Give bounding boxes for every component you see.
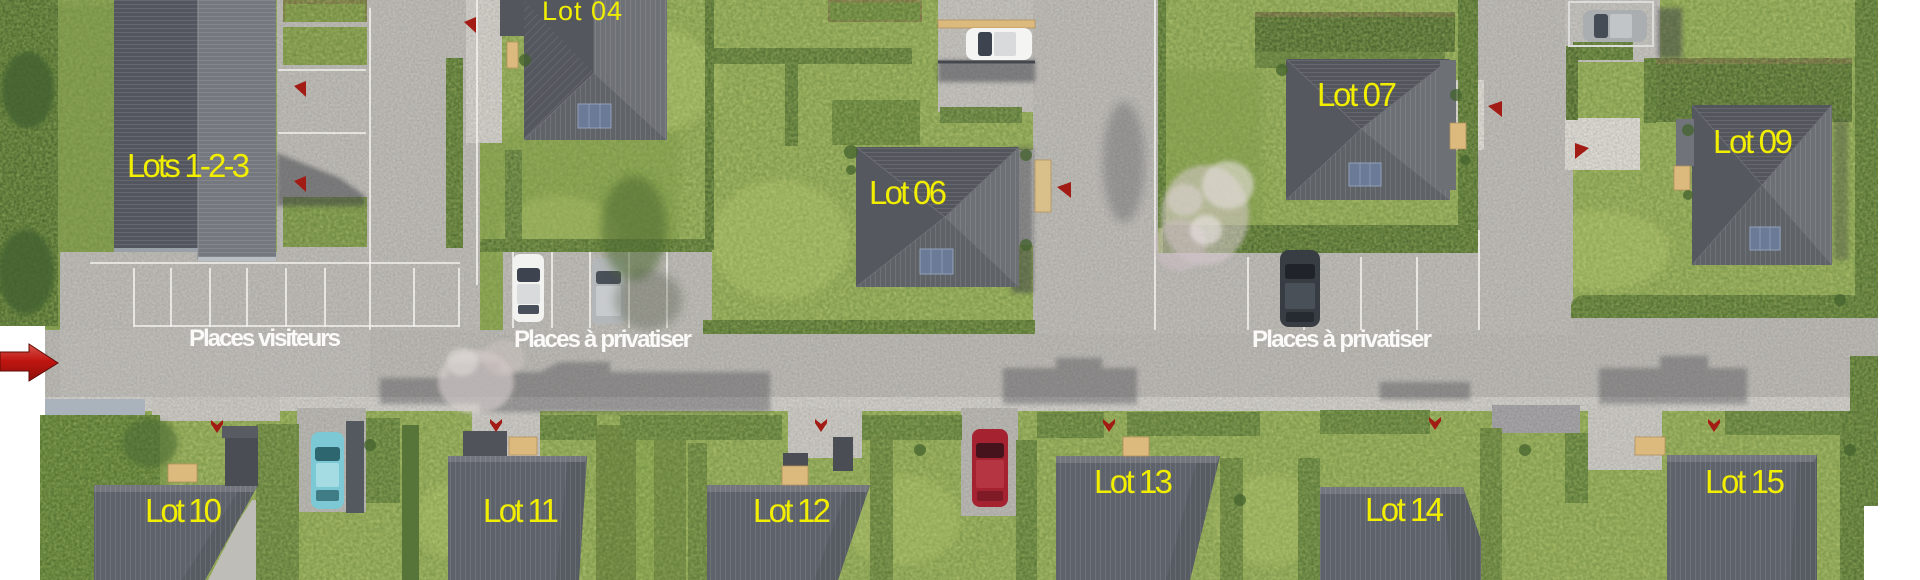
svg-text:Places à privatiser: Places à privatiser: [1252, 326, 1432, 353]
svg-text:Lot 07: Lot 07: [1317, 76, 1397, 113]
svg-text:Lot 13: Lot 13: [1094, 463, 1173, 500]
svg-text:Lot 12: Lot 12: [753, 492, 831, 529]
svg-text:Lots 1-2-3: Lots 1-2-3: [127, 147, 250, 184]
svg-text:Lot 09: Lot 09: [1713, 123, 1793, 160]
svg-text:Lot 14: Lot 14: [1365, 491, 1444, 528]
svg-text:Lot 06: Lot 06: [869, 174, 947, 211]
svg-text:Lot 10: Lot 10: [145, 492, 222, 529]
svg-text:Lot 15: Lot 15: [1705, 463, 1785, 500]
svg-text:Places à privatiser: Places à privatiser: [514, 326, 692, 353]
svg-text:Places visiteurs: Places visiteurs: [189, 325, 341, 352]
svg-text:Lot 11: Lot 11: [483, 492, 559, 529]
svg-text:Lot 04: Lot 04: [542, 0, 622, 26]
